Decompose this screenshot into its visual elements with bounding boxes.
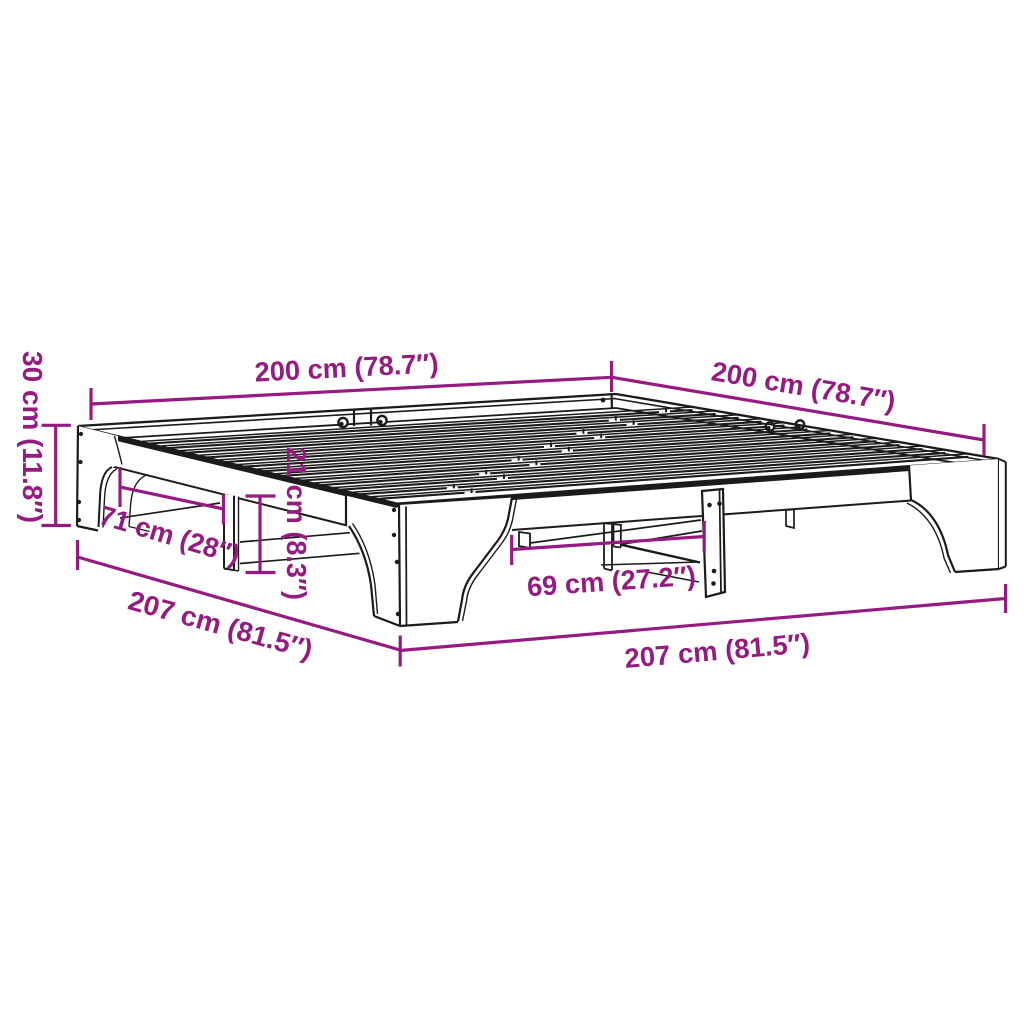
svg-text:30 cm (11.8″): 30 cm (11.8″) bbox=[17, 351, 48, 523]
svg-text:21 cm (8.3″): 21 cm (8.3″) bbox=[281, 447, 312, 600]
